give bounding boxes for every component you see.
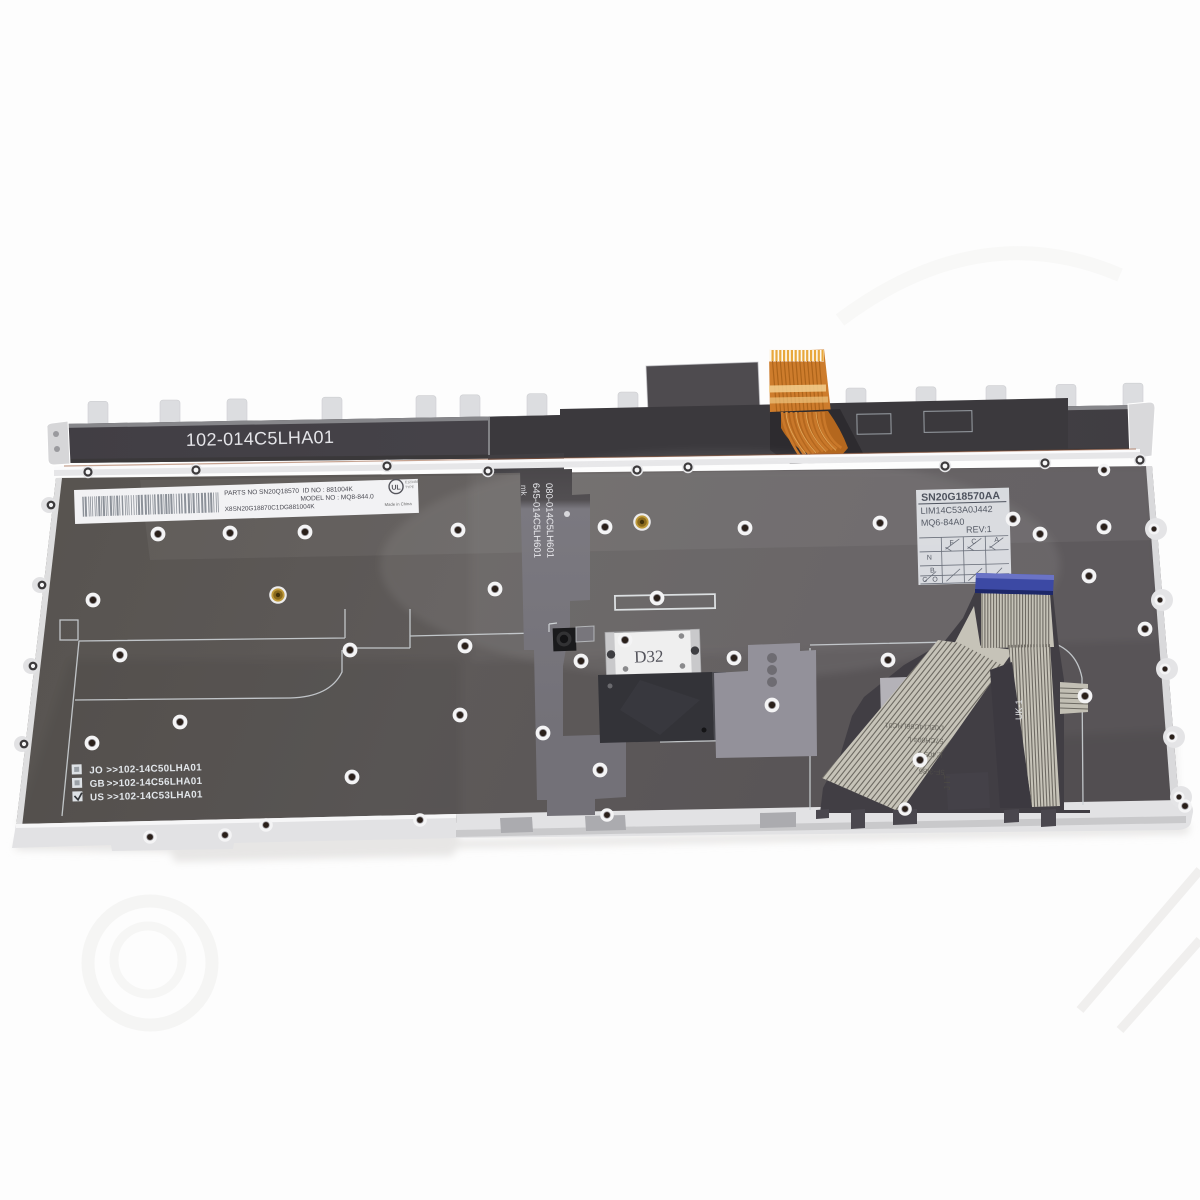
svg-text:5F-3I86: 5F-3I86	[919, 767, 945, 777]
svg-text:D32: D32	[634, 647, 664, 667]
svg-text:LIM14C53A0J442: LIM14C53A0J442	[920, 504, 992, 516]
svg-text:645-014C5LH601: 645-014C5LH601	[530, 483, 542, 558]
svg-text:N: N	[927, 555, 932, 562]
svg-text:O: O	[932, 576, 938, 583]
svg-text:UL: UL	[391, 484, 401, 491]
svg-text:JO: JO	[89, 765, 103, 776]
svg-text:TYPE: TYPE	[405, 485, 415, 489]
svg-text:102-014C5LHA01: 102-014C5LHA01	[186, 427, 335, 450]
svg-text:E123456: E123456	[405, 480, 419, 484]
svg-text:B: B	[930, 568, 935, 575]
svg-text:Made in China: Made in China	[385, 501, 413, 507]
svg-text:C: C	[922, 577, 927, 584]
svg-text:GB: GB	[89, 779, 105, 790]
svg-text:US: US	[90, 792, 105, 803]
svg-text:UK-1: UK-1	[1014, 699, 1024, 720]
svg-text:F: F	[949, 540, 953, 547]
svg-text:J I T: J I T	[943, 774, 952, 790]
svg-text:MQ6-84A0: MQ6-84A0	[921, 517, 965, 528]
svg-text:A: A	[994, 537, 999, 544]
svg-text:REV:1: REV:1	[966, 524, 992, 535]
svg-text:080-014C5LH601: 080-014C5LH601	[543, 483, 555, 558]
svg-text:mk: mk	[519, 485, 528, 497]
svg-text:C: C	[971, 538, 976, 545]
